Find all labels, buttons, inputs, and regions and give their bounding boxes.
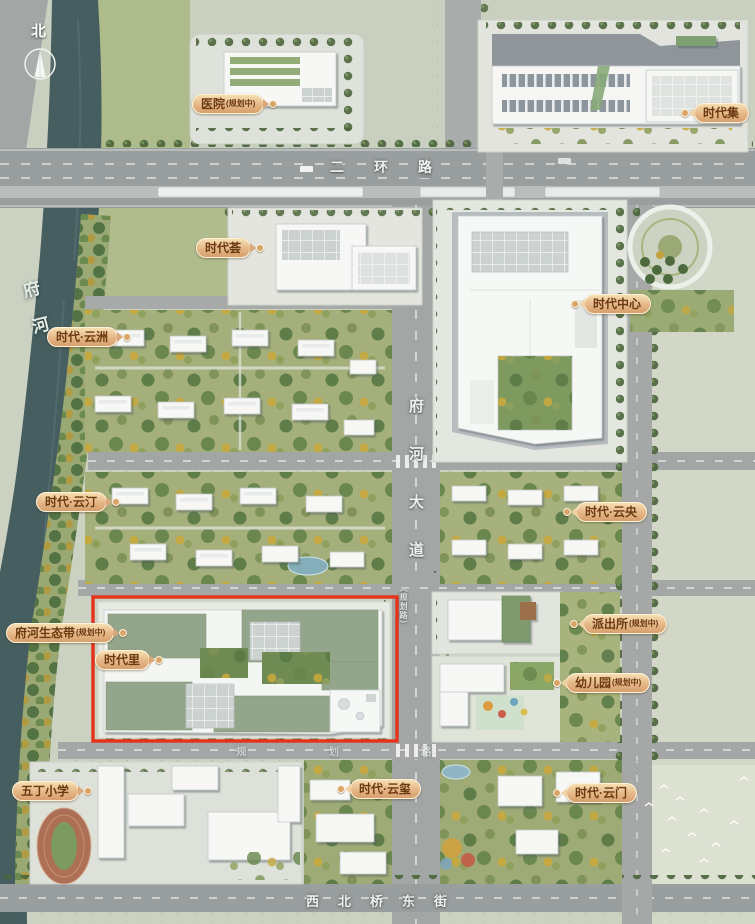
leader-dot	[256, 244, 264, 252]
shidaiji-parcel	[478, 20, 748, 152]
masterplan-map: 北 府河 二环路 府河大道 西北桥东街 规划路 （规划路） 医院(规划中) 时代…	[0, 0, 755, 924]
yunzhou-parcel	[85, 310, 392, 452]
playground	[442, 838, 462, 858]
label-yunyang: 时代·云央	[576, 502, 647, 522]
label-eco-belt-text: 府河生态带	[15, 626, 75, 640]
label-shidaihui-text: 时代荟	[205, 241, 241, 255]
label-hospital-sub: (规划中)	[226, 99, 255, 109]
vehicle	[300, 166, 313, 172]
label-wuding-school-text: 五丁小学	[21, 784, 69, 798]
shidai-center-parcel	[433, 200, 627, 462]
leader-dot	[563, 508, 571, 516]
shidaihui-parcel	[228, 208, 422, 305]
leader-dot	[553, 789, 561, 797]
road-label-ring-road: 二环路	[330, 157, 462, 177]
hospital-parcel	[190, 34, 364, 144]
leader-dot	[123, 333, 131, 341]
leader-dot	[571, 300, 579, 308]
yunting-parcel	[85, 472, 392, 584]
label-yunmen-text: 时代·云门	[575, 786, 627, 800]
running-track	[37, 808, 91, 884]
kindergarten-parcel	[432, 656, 562, 742]
vehicle	[558, 158, 571, 164]
label-yunzhou-text: 时代·云洲	[56, 330, 108, 344]
label-hospital: 医院(规划中)	[192, 94, 264, 114]
road-label-xibeiqiao-east: 西北桥东街	[306, 891, 466, 910]
label-shidaili: 时代里	[95, 650, 150, 670]
label-shidaiji: 时代集	[694, 103, 749, 123]
label-yunting: 时代·云汀	[36, 492, 107, 512]
label-yunxi-text: 时代·云玺	[359, 782, 411, 796]
leader-dot	[570, 620, 578, 628]
police-station-parcel	[432, 592, 562, 654]
label-shidaihui: 时代荟	[196, 238, 251, 258]
yunmen-parcel	[440, 760, 622, 884]
label-yunxi: 时代·云玺	[350, 779, 421, 799]
label-shidaiji-text: 时代集	[703, 106, 739, 120]
leader-dot	[155, 656, 163, 664]
leader-dot	[112, 498, 120, 506]
road-label-planned-road: 规划路	[236, 744, 514, 759]
road-label-planned-road-side: （规划路）	[398, 584, 409, 629]
label-shidai-center-text: 时代中心	[593, 297, 641, 311]
label-yunyang-text: 时代·云央	[585, 505, 637, 519]
rail-platform	[158, 187, 363, 197]
label-hospital-text: 医院	[201, 97, 225, 111]
compass	[25, 49, 55, 79]
label-yunting-text: 时代·云汀	[45, 495, 97, 509]
vacant-parcel	[648, 765, 755, 884]
label-police-station: 派出所(规划中)	[583, 614, 667, 634]
label-wuding-school: 五丁小学	[12, 781, 79, 801]
compass-north-label: 北	[31, 20, 46, 41]
leader-dot	[269, 100, 277, 108]
label-shidai-center: 时代中心	[584, 294, 651, 314]
yunyang-parcel	[440, 472, 622, 584]
leader-dot	[337, 785, 345, 793]
leader-dot	[681, 109, 689, 117]
label-kindergarten-text: 幼儿园	[575, 676, 611, 690]
leader-dot	[119, 629, 127, 637]
label-police-station-text: 派出所	[592, 617, 628, 631]
label-eco-belt: 府河生态带(规划中)	[6, 623, 114, 643]
label-yunzhou: 时代·云洲	[47, 327, 118, 347]
label-shidaili-text: 时代里	[104, 653, 140, 667]
label-yunmen: 时代·云门	[566, 783, 637, 803]
label-kindergarten: 幼儿园(规划中)	[566, 673, 650, 693]
road-label-fuhe-avenue: 府河大道	[405, 398, 426, 590]
shidaili-building	[104, 610, 382, 734]
leader-dot	[553, 679, 561, 687]
leader-dot	[84, 787, 92, 795]
